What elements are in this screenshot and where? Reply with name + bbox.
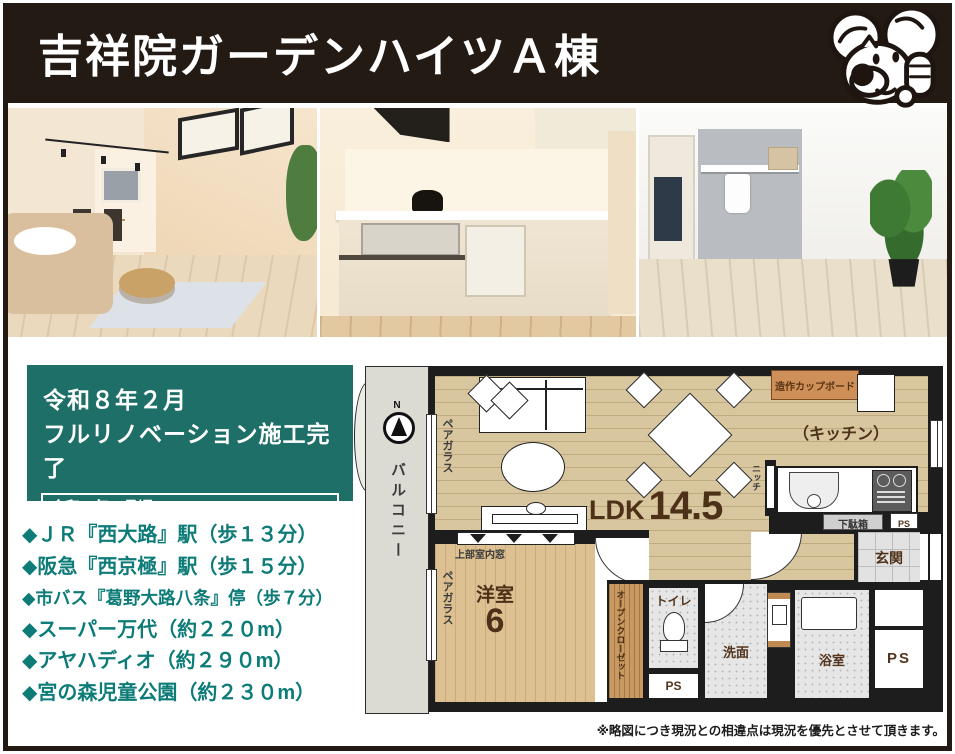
header: 吉祥院ガーデンハイツＡ棟 bbox=[8, 8, 947, 103]
window-triangle bbox=[542, 534, 558, 543]
location-item: ◆阪急『西京極』駅（歩１５分） bbox=[22, 552, 362, 584]
track-light-spot bbox=[101, 156, 106, 164]
dog-mascot-icon bbox=[820, 10, 948, 116]
storage-boxes bbox=[768, 147, 798, 170]
track-light-spot bbox=[61, 149, 66, 157]
disclaimer-text: ※略図につき現況との相違点は現況を優先とさせて頂きます。 bbox=[470, 720, 945, 739]
wall-bedroom-door-top bbox=[595, 530, 649, 538]
cupboard-label: 造作カップボード bbox=[775, 378, 855, 393]
compass-icon bbox=[383, 412, 415, 444]
stove-front-panel bbox=[361, 223, 460, 257]
washer-bottom-strip bbox=[768, 641, 790, 647]
flyer-page: 吉祥院ガーデンハイツＡ棟 bbox=[0, 0, 955, 754]
window-triangle bbox=[470, 534, 486, 543]
shoe-cabinet-label: 下駄箱 bbox=[838, 520, 868, 531]
toilet-label: トイレ bbox=[649, 592, 698, 609]
entrance-door-opening bbox=[930, 534, 941, 580]
hallway-dark-room bbox=[654, 177, 682, 241]
window-triangle bbox=[506, 534, 522, 543]
location-item: ◆宮の森児童公園（約２３０m） bbox=[22, 678, 362, 710]
sink-faucet-circle bbox=[807, 494, 821, 508]
niche-label: ニッチ bbox=[750, 464, 763, 514]
floor-plan: N バルコニー 造作カップボード bbox=[361, 362, 947, 716]
toilet-ps: PS bbox=[649, 674, 698, 698]
tv-board-inner bbox=[492, 514, 578, 524]
western-room-size: 6 bbox=[453, 602, 537, 641]
location-item: ◆市バス『葛野大路八条』停（歩７分） bbox=[22, 583, 362, 615]
location-list: ◆ＪＲ『西大路』駅（歩１３分） ◆阪急『西京極』駅（歩１５分） ◆市バス『葛野大… bbox=[22, 520, 362, 709]
kitchen-label: （キッチン） bbox=[761, 420, 921, 444]
tv-board-oval bbox=[526, 502, 546, 515]
page-title: 吉祥院ガーデンハイツＡ棟 bbox=[8, 8, 947, 105]
living-back-window bbox=[101, 168, 141, 204]
window-kitchen-right bbox=[930, 420, 943, 468]
stove-grill bbox=[877, 491, 905, 505]
ps-upper-box bbox=[875, 590, 923, 626]
monstera-plant bbox=[870, 170, 932, 266]
ldk-size: 14.5 bbox=[649, 484, 723, 529]
ps-label: PS bbox=[665, 679, 681, 693]
toilet-bowl-icon bbox=[663, 612, 685, 642]
photo-western-room bbox=[639, 108, 947, 337]
balcony-label: バルコニー bbox=[387, 462, 408, 612]
bathroom: 浴室 bbox=[795, 590, 869, 698]
round-coffee-table bbox=[501, 442, 565, 492]
shoe-cabinet: 下駄箱 bbox=[823, 514, 883, 530]
renovation-box: 令和８年２月 フルリノベーション施工完了 令和８年４月頃 バルコニー側窓のアルミ… bbox=[27, 365, 353, 501]
stove-burner bbox=[893, 474, 906, 487]
open-closet: オープンクローゼット bbox=[609, 584, 643, 698]
upper-interior-window-label: 上部室内窓 bbox=[455, 546, 505, 561]
location-item: ◆ＪＲ『西大路』駅（歩１３分） bbox=[22, 520, 362, 552]
stove bbox=[872, 470, 912, 512]
plant-right bbox=[286, 145, 317, 241]
ldk-text: LDK bbox=[589, 495, 645, 526]
renovation-line-2: フルリノベーション施工完了 bbox=[43, 415, 353, 483]
plant-pot bbox=[888, 259, 919, 286]
washing-machine-space bbox=[767, 592, 791, 648]
renovation-note-line-1: 令和８年４月頃 bbox=[51, 499, 329, 519]
stove-burner bbox=[877, 474, 890, 487]
washer-top-strip bbox=[768, 593, 790, 599]
kettle bbox=[412, 190, 444, 213]
photo-kitchen bbox=[320, 108, 636, 337]
toilet-room: トイレ bbox=[649, 588, 698, 668]
kitchen-floor bbox=[320, 316, 636, 337]
countertop bbox=[336, 211, 614, 220]
toilet-base-icon bbox=[660, 640, 688, 652]
bathtub-icon bbox=[801, 597, 857, 630]
backsplash bbox=[345, 149, 610, 211]
compass-needle bbox=[391, 417, 407, 436]
entrance-label: 玄関 bbox=[858, 548, 920, 568]
ps-right-room: PS bbox=[875, 630, 923, 688]
hanging-shirt bbox=[725, 174, 750, 213]
ps-label: PS bbox=[887, 650, 911, 667]
ps-top-box: PS bbox=[890, 513, 918, 529]
right-doorway bbox=[608, 131, 636, 314]
photo-living-room bbox=[8, 108, 317, 337]
compass-north-label: N bbox=[383, 400, 411, 411]
open-closet-label: オープンクローゼット bbox=[613, 590, 627, 694]
refrigerator-space bbox=[857, 374, 895, 412]
ps-label: PS bbox=[898, 519, 910, 529]
custom-cupboard: 造作カップボード bbox=[771, 370, 859, 400]
niche-recess bbox=[767, 466, 774, 508]
cabinet-toe-kick bbox=[339, 255, 465, 261]
track-light-spot bbox=[135, 163, 140, 171]
coffee-table bbox=[119, 268, 175, 298]
interior-window-symbol bbox=[457, 532, 575, 545]
sofa-pillow bbox=[14, 227, 76, 254]
window-ldk-balcony bbox=[426, 414, 437, 514]
ldk-label: LDK 14.5 bbox=[589, 484, 722, 529]
window-bedroom-balcony bbox=[426, 569, 437, 661]
bathroom-label: 浴室 bbox=[795, 650, 869, 669]
location-item: ◆スーパー万代（約２２０m） bbox=[22, 615, 362, 647]
tv-board bbox=[481, 506, 587, 531]
wall-bottom bbox=[425, 702, 943, 712]
dishwasher-panel bbox=[465, 225, 526, 298]
pair-glass-label-ldk: ペアガラス bbox=[439, 418, 455, 528]
renovation-line-1: 令和８年２月 bbox=[43, 381, 353, 415]
washroom-label: 洗面 bbox=[705, 642, 767, 661]
location-item: ◆アヤハディオ（約２９０m） bbox=[22, 646, 362, 678]
bedroom-door-arc bbox=[595, 538, 649, 586]
entrance-floor: 玄関 bbox=[858, 532, 920, 582]
washer-inner bbox=[772, 605, 787, 625]
